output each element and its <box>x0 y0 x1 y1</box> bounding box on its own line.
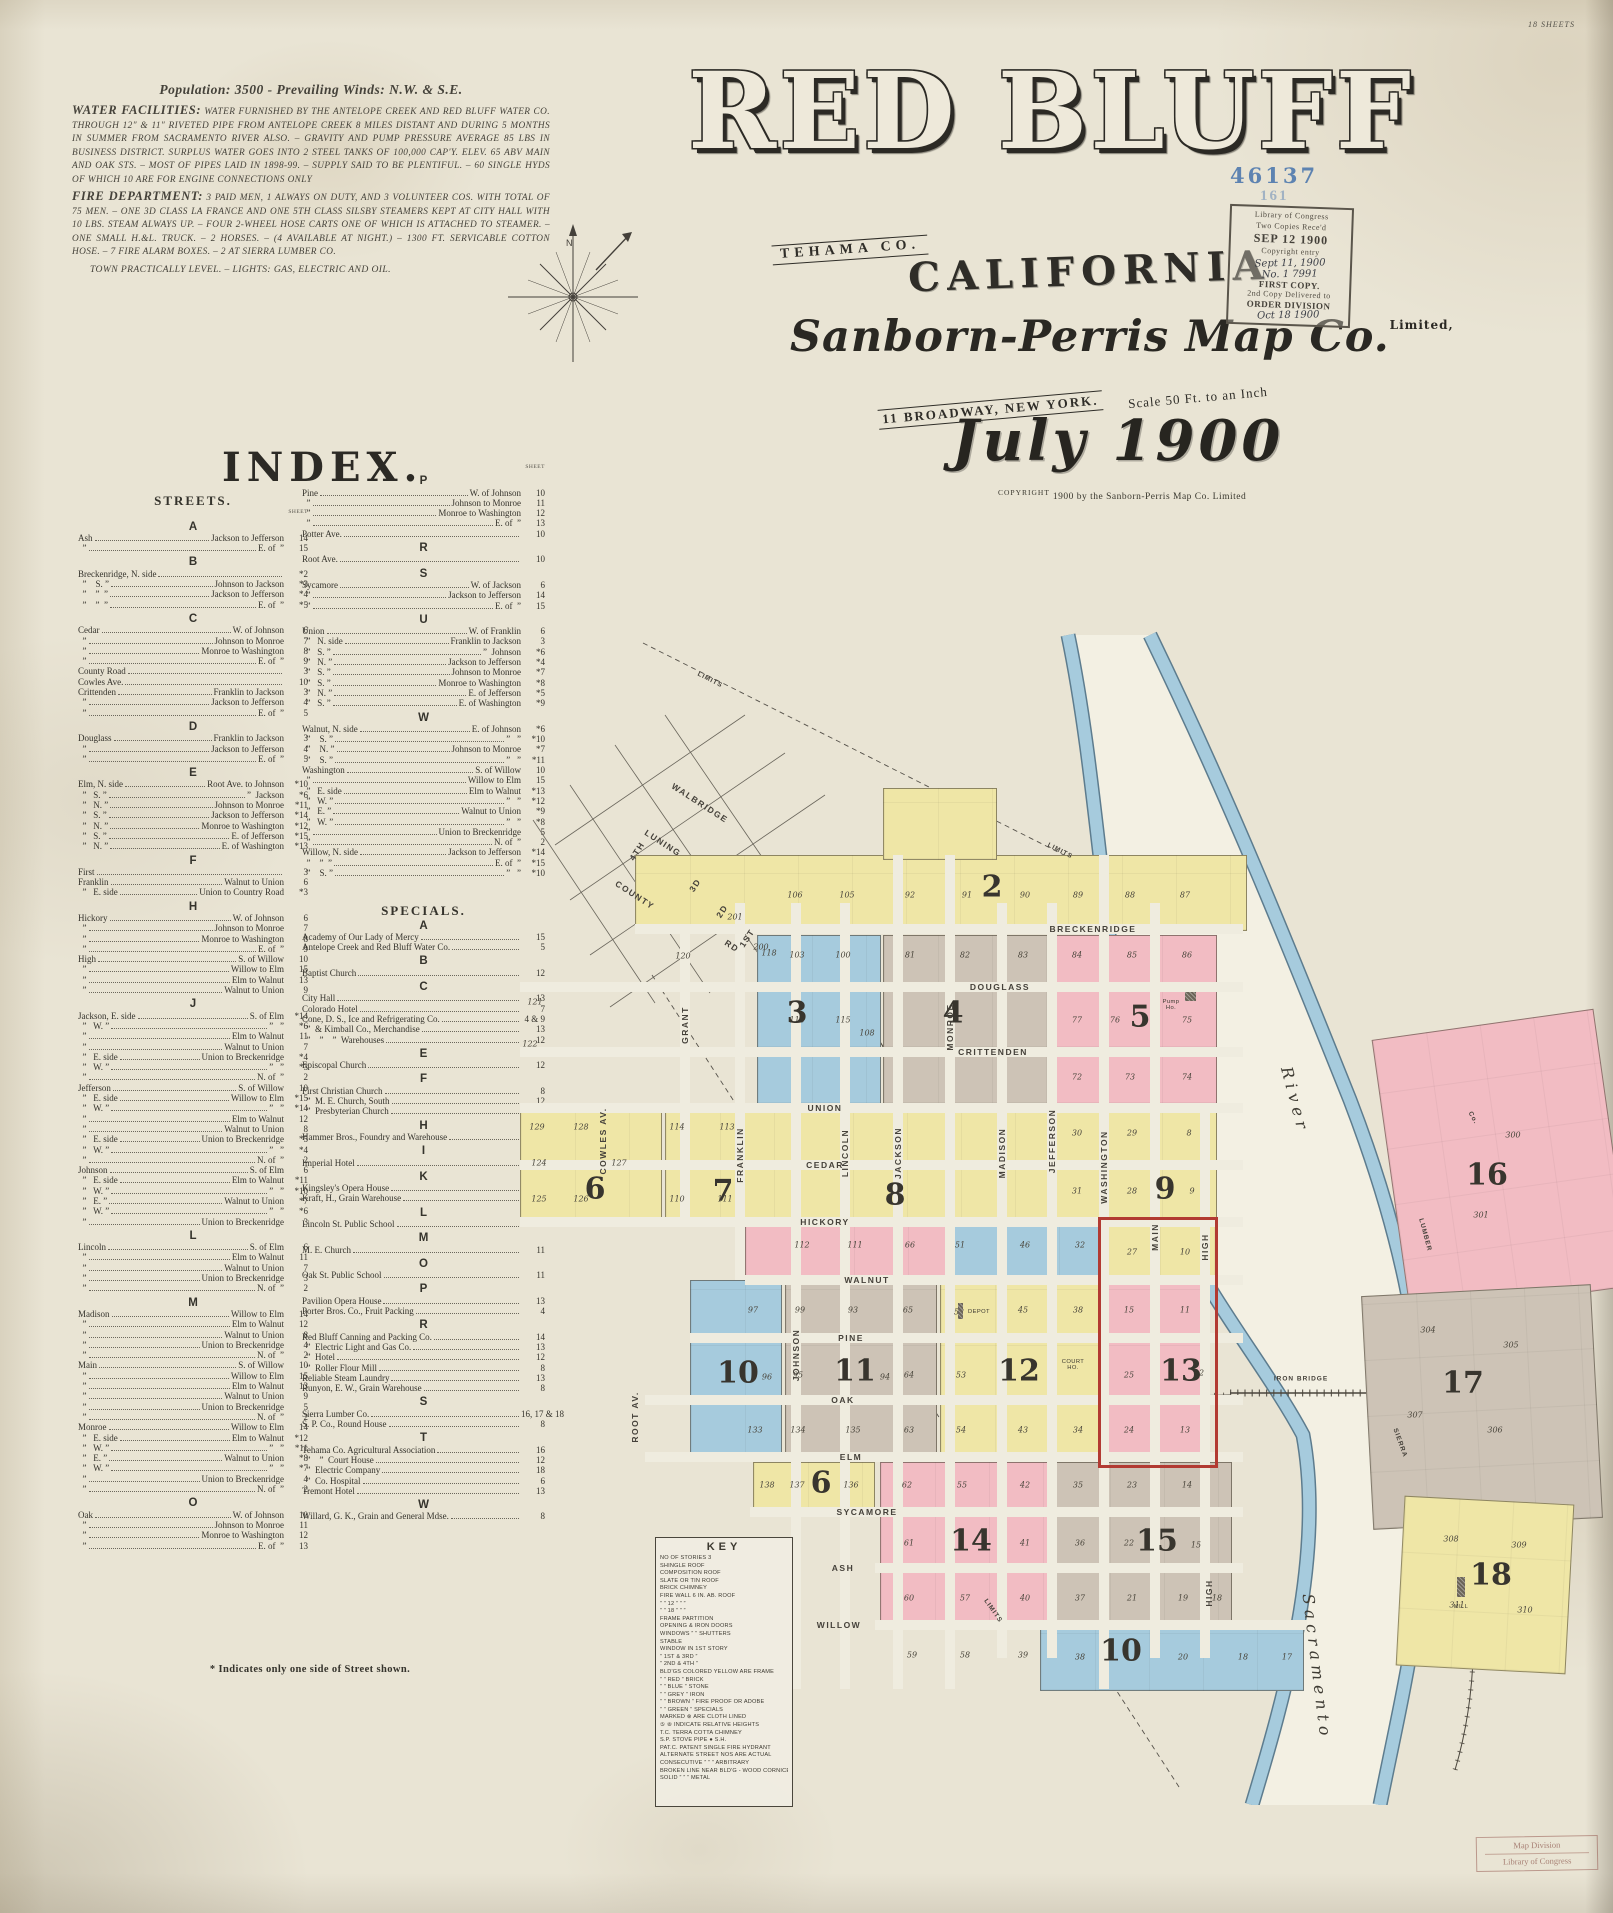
map-key: KEY NO OF STORIES 3SHINGLE ROOFCOMPOSITI… <box>655 1537 793 1807</box>
entry-range: ” ” <box>269 1062 284 1072</box>
lot-number: 122 <box>522 1040 537 1049</box>
street-label-ash: ASH <box>832 1563 854 1573</box>
river-label: River <box>1277 1065 1313 1136</box>
index-section-letter: H <box>78 902 308 912</box>
lot-number: 41 <box>1020 1539 1030 1548</box>
entry-name: ” E. side <box>78 1093 118 1103</box>
entry-leader-dots <box>111 1193 267 1194</box>
entry-range: Union to Breckenridge <box>202 1340 284 1350</box>
entry-name: Red Bluff Canning and Packing Co. <box>302 1332 432 1342</box>
key-line: SHINGLE ROOF <box>660 1563 788 1571</box>
index-street-entry: ” W. ”” ”*6 <box>78 1206 308 1216</box>
entry-name: ” W. ” <box>78 1145 109 1155</box>
entry-name: Kingsley's Opera House <box>302 1183 389 1193</box>
block-number-11: 11 <box>834 1354 876 1389</box>
entry-name: ” N. ” <box>78 841 108 851</box>
lot-number: 73 <box>1125 1073 1135 1082</box>
entry-name: Pine <box>302 488 318 498</box>
entry-name: ” W. ” <box>78 1021 109 1031</box>
entry-name: ” S. ” <box>302 647 331 657</box>
entry-leader-dots <box>89 941 200 942</box>
entry-range: Elm to Walnut <box>232 1381 284 1391</box>
lot-number: 121 <box>527 998 542 1007</box>
entry-range: Johnson to Jackson <box>215 579 285 589</box>
lot-number: 83 <box>1018 951 1028 960</box>
entry-range: E. of ” <box>258 944 284 954</box>
entry-name: ” S. ” <box>302 755 333 765</box>
entry-range: Monroe to Washington <box>201 934 284 944</box>
index-street-entry: MonroeWillow to Elm14 <box>78 1422 308 1432</box>
entry-range: Willow to Elm <box>231 1093 284 1103</box>
entry-name: ” Hotel <box>302 1352 335 1362</box>
entry-range: E. of ” <box>258 600 284 610</box>
entry-range: N. of ” <box>257 1350 284 1360</box>
entry-leader-dots <box>347 772 473 773</box>
entry-name: S. P. Co., Round House <box>302 1419 387 1429</box>
entry-range: E. of Washington <box>222 841 284 851</box>
entry-name: City Hall <box>302 993 335 1003</box>
lot-number: 32 <box>1075 1241 1085 1250</box>
compass-north-arrow <box>569 224 577 236</box>
entry-name: ” <box>78 656 87 666</box>
street-label-douglass: DOUGLASS <box>970 982 1030 992</box>
entry-name: ” ” ” <box>302 858 332 868</box>
street-label-washington: WASHINGTON <box>1099 1130 1109 1203</box>
key-line: SOLID ” ” ” METAL <box>660 1775 788 1783</box>
entry-range: ” ” <box>269 1103 284 1113</box>
entry-name: Franklin <box>78 877 109 887</box>
index-street-entry: MadisonWillow to Elm14 <box>78 1309 308 1319</box>
street-ash <box>875 1563 1243 1573</box>
entry-leader-dots <box>333 705 457 706</box>
entry-name: Potter Ave. <box>302 529 342 539</box>
entry-name: ” <box>78 934 87 944</box>
entry-name: M. E. Church <box>302 1245 351 1255</box>
entry-leader-dots <box>111 1450 267 1451</box>
lot-number: 201 <box>727 913 742 922</box>
lot-number: 21 <box>1127 1594 1137 1603</box>
index-street-entry: ”Walnut to Union8 <box>78 1330 308 1340</box>
entry-name: ” <box>78 1391 87 1401</box>
entry-name: ” <box>78 1412 87 1422</box>
entry-range: Monroe to Washington <box>201 821 284 831</box>
entry-leader-dots <box>89 1388 230 1389</box>
street-label-franklin: FRANKLIN <box>735 1127 745 1182</box>
index-street-entry: ”E. of ”9 <box>78 944 308 954</box>
entry-leader-dots <box>313 782 466 783</box>
index-street-entry: ”Union to Breckenridge3 <box>78 1273 308 1283</box>
entry-range: S. of Willow <box>238 1083 284 1093</box>
key-line: OPENING & IRON DOORS <box>660 1623 788 1631</box>
entry-leader-dots <box>125 786 205 787</box>
map-region <box>950 1222 1107 1282</box>
entry-leader-dots <box>120 1141 200 1142</box>
lot-number: 111 <box>847 1241 862 1250</box>
entry-leader-dots <box>89 1481 200 1482</box>
entry-leader-dots <box>335 875 504 876</box>
entry-range: Union to Breckenridge <box>202 1474 284 1484</box>
block-number-10: 10 <box>1100 1634 1142 1669</box>
entry-range: Jackson to Jefferson <box>211 533 284 543</box>
entry-name: Jackson, E. side <box>78 1011 136 1021</box>
entry-name: ” <box>78 754 87 764</box>
entry-range: N. of ” <box>257 1484 284 1494</box>
entry-leader-dots <box>111 586 213 587</box>
entry-sheet-number: 13 <box>284 1541 308 1551</box>
entry-range: Jackson to Jefferson <box>211 589 284 599</box>
key-line: T.C. TERRA COTTA CHIMNEY <box>660 1730 788 1738</box>
compass-north-letter: N <box>566 238 573 248</box>
entry-name: Root Ave. <box>302 554 338 564</box>
street-label-crittenden: CRITTENDEN <box>958 1047 1028 1057</box>
entry-name: ” E. ” <box>78 1453 107 1463</box>
lot-number: 93 <box>848 1306 858 1315</box>
entry-name: ” <box>78 1402 87 1412</box>
street-label-high: HIGH <box>1200 1233 1210 1260</box>
entry-name: Lincoln <box>78 1242 106 1252</box>
block-number-17: 17 <box>1442 1366 1484 1401</box>
street-label-pine: PINE <box>838 1333 864 1343</box>
entry-range: Franklin to Jackson <box>214 687 285 697</box>
entry-leader-dots <box>333 685 437 686</box>
entry-range: Walnut to Union <box>224 1196 284 1206</box>
index-street-entry: Cowles Ave.10 <box>78 677 308 687</box>
entry-name: Sierra Lumber Co. <box>302 1409 369 1419</box>
entry-range: E. of Jefferson <box>231 831 284 841</box>
entry-leader-dots <box>335 741 504 742</box>
index-street-entry: JeffersonS. of Willow10 <box>78 1083 308 1093</box>
lot-number: 62 <box>902 1481 912 1490</box>
map-division-line1: Map Division <box>1477 1839 1597 1852</box>
entry-leader-dots <box>111 1110 267 1111</box>
entry-name: ” <box>302 837 311 847</box>
key-line: PAT.C. PATENT SINGLE FIRE HYDRANT <box>660 1745 788 1753</box>
entry-name: ” W. ” <box>78 1186 109 1196</box>
entry-range: Willow to Elm <box>231 964 284 974</box>
block-number-6: 6 <box>811 1466 832 1501</box>
lot-number: 37 <box>1075 1594 1085 1603</box>
entry-range: E. of ” <box>258 1541 284 1551</box>
entry-name: ” E. ” <box>78 1196 107 1206</box>
entry-range: Union to Breckenridge <box>202 1217 284 1227</box>
key-line: ” ” 12 ” ” ” <box>660 1601 788 1609</box>
entry-leader-dots <box>344 536 519 537</box>
entry-leader-dots <box>89 1378 229 1379</box>
entry-name: First <box>78 867 95 877</box>
lot-number: 105 <box>839 891 854 900</box>
index-street-entry: ”Monroe to Washington8 <box>78 646 308 656</box>
entry-range: ” ” <box>269 1443 284 1453</box>
entry-name: ” W. ” <box>78 1443 109 1453</box>
lot-number: 301 <box>1473 1211 1488 1220</box>
publisher-title: Sanborn-Perris Map Co.Limited, <box>790 312 1454 362</box>
index-street-entry: ”E. of ”9 <box>78 656 308 666</box>
street-willow <box>875 1620 1307 1630</box>
entry-range: Monroe to Washington <box>201 646 284 656</box>
index-street-entry: ”Monroe to Washington12 <box>78 1530 308 1540</box>
index-street-entry: ” W. ”” ”*11 <box>78 1443 308 1453</box>
lot-number: 29 <box>1127 1129 1137 1138</box>
entry-leader-dots <box>360 854 446 855</box>
block-number-18: 18 <box>1470 1558 1512 1593</box>
entry-leader-dots <box>109 838 230 839</box>
lot-number: 309 <box>1511 1541 1526 1550</box>
entry-leader-dots <box>89 1419 256 1420</box>
entry-name: ” N. ” <box>302 657 332 667</box>
entry-name: ” E. side <box>78 1134 118 1144</box>
entry-leader-dots <box>89 1121 230 1122</box>
entry-name: ” <box>78 985 87 995</box>
entry-name: Cowles Ave. <box>78 677 123 687</box>
water-facilities-text: WATER FURNISHED BY THE ANTELOPE CREEK AN… <box>72 107 550 185</box>
entry-sheet-number: 12 <box>521 508 545 518</box>
entry-leader-dots <box>89 1224 200 1225</box>
lot-number: 82 <box>960 951 970 960</box>
entry-leader-dots <box>120 894 198 895</box>
entry-range: ” ” <box>269 1021 284 1031</box>
town-notes: Population: 3500 - Prevailing Winds: N.W… <box>72 82 550 279</box>
entry-leader-dots <box>313 834 437 835</box>
entry-range: N. of ” <box>257 1283 284 1293</box>
entry-name: ” <box>78 543 87 553</box>
key-line: WINDOWS ” ” SHUTTERS <box>660 1631 788 1639</box>
entry-leader-dots <box>120 1182 230 1183</box>
entry-range: Walnut to Union <box>224 1124 284 1134</box>
entry-name: Cedar <box>78 625 100 635</box>
entry-range: S. of Willow <box>238 954 284 964</box>
entry-leader-dots <box>335 803 504 804</box>
lot-number: 108 <box>859 1029 874 1038</box>
index-street-entry: ”N. of ”2 <box>78 1283 308 1293</box>
index-street-entry: ”Walnut to Union9 <box>78 985 308 995</box>
entry-leader-dots <box>89 930 213 931</box>
street-franklin <box>735 903 745 1280</box>
entry-range: Franklin to Jackson <box>214 733 285 743</box>
entry-leader-dots <box>89 1162 256 1163</box>
index-street-entry: ” W. ”” ”*7 <box>78 1463 308 1473</box>
entry-name: ” Presbyterian Church <box>302 1106 389 1116</box>
entry-name: Willow, N. side <box>302 847 358 857</box>
index-street-entry: ”Walnut to Union7 <box>78 1042 308 1052</box>
index-street-entry: ”Willow to Elm15 <box>78 964 308 974</box>
index-street-entry: DouglassFranklin to Jackson3 <box>78 733 308 743</box>
entry-name: ” <box>78 1283 87 1293</box>
entry-name: ” E. side <box>302 786 342 796</box>
entry-leader-dots <box>89 1270 223 1271</box>
feature-label-depot: DEPOT <box>968 1309 990 1315</box>
entry-name: ” Co. Hospital <box>302 1476 361 1486</box>
entry-leader-dots <box>95 540 210 541</box>
lot-number: 30 <box>1072 1129 1082 1138</box>
entry-name: Elm, N. side <box>78 779 123 789</box>
entry-leader-dots <box>89 550 257 551</box>
lot-number: 22 <box>1124 1539 1134 1548</box>
lot-number: 31 <box>1072 1187 1082 1196</box>
map-division-line2: Library of Congress <box>1477 1855 1597 1868</box>
entry-leader-dots <box>333 674 450 675</box>
entry-name: ” W. ” <box>78 1062 109 1072</box>
entry-name: ” <box>78 1273 87 1283</box>
entry-name: ” N. ” <box>78 800 108 810</box>
index-street-entry: ” S. ”” Jackson*6 <box>78 790 308 800</box>
entry-leader-dots <box>120 1440 230 1441</box>
entry-name: Pavilion Opera House <box>302 1296 381 1306</box>
entry-name: ” ” ” <box>78 589 108 599</box>
entry-leader-dots <box>89 663 257 664</box>
library-of-congress-stamp: Library of CongressTwo Copies Rece'dSEP … <box>1226 204 1354 328</box>
index-street-entry: ” S. ”Johnson to Jackson*3 <box>78 579 308 589</box>
index-street-entry: JohnsonS. of Elm6 <box>78 1165 308 1175</box>
entry-range: Monroe to Washington <box>438 508 521 518</box>
key-line: ” 1ST & 3RD ” <box>660 1654 788 1662</box>
entry-range: Elm to Walnut <box>232 1114 284 1124</box>
index-street-entry: HickoryW. of Johnson6 <box>78 913 308 923</box>
entry-leader-dots <box>334 664 446 665</box>
lot-number: 64 <box>904 1371 914 1380</box>
compass-rays <box>508 232 638 362</box>
index-section-letter: P <box>302 476 545 486</box>
feature-pump-ho- <box>1185 992 1196 1001</box>
lot-number: 8 <box>1186 1129 1191 1138</box>
street-label-grant: GRANT <box>680 1006 690 1044</box>
entry-range: Walnut to Union <box>224 877 284 887</box>
entry-name: ” E. ” <box>302 806 331 816</box>
lot-number: 114 <box>669 1123 684 1132</box>
entry-leader-dots <box>95 1517 231 1518</box>
index-street-entry: ”E. of ”5 <box>78 754 308 764</box>
entry-sheet-number: 11 <box>521 498 545 508</box>
entry-leader-dots <box>89 1548 257 1549</box>
lot-number: 23 <box>1127 1481 1137 1490</box>
index-street-entry: ”Johnson to Monroe11 <box>302 498 545 508</box>
entry-leader-dots <box>89 704 210 705</box>
fire-department-paragraph: FIRE DEPARTMENT: 3 PAID MEN, 1 ALWAYS ON… <box>72 190 550 260</box>
entry-name: ” <box>78 1155 87 1165</box>
entry-name: Tremont Hotel <box>302 1486 355 1496</box>
entry-range: ” ” <box>269 1186 284 1196</box>
lot-number: 124 <box>531 1159 546 1168</box>
entry-name: Antelope Creek and Red Bluff Water Co. <box>302 942 450 952</box>
entry-name: ” S. ” <box>78 579 109 589</box>
index-street-entry: ”Jackson to Jefferson4 <box>78 697 308 707</box>
index-street-entry: ” E. sideElm to Walnut*12 <box>78 1433 308 1443</box>
feature-mill <box>1457 1577 1465 1597</box>
water-facilities-label: WATER FACILITIES: <box>72 103 201 117</box>
index-street-entry: ”E. of ”13 <box>302 518 545 528</box>
entry-leader-dots <box>333 813 459 814</box>
block-number-15: 15 <box>1136 1524 1178 1559</box>
entry-leader-dots <box>89 1290 256 1291</box>
entry-name: ” <box>302 827 311 837</box>
street-label-johnson: JOHNSON <box>791 1329 801 1382</box>
lot-number: 135 <box>845 1426 860 1435</box>
feature-label-pump-ho-: Pump Ho. <box>1163 999 1180 1011</box>
entry-leader-dots <box>109 1203 222 1204</box>
entry-name: ” <box>302 775 311 785</box>
lot-number: 90 <box>1020 891 1030 900</box>
lot-number: 38 <box>1073 1306 1083 1315</box>
entry-range: Walnut to Union <box>224 1042 284 1052</box>
entry-range: S. of Willow <box>238 1360 284 1370</box>
entry-sheet-number: 10 <box>521 529 545 539</box>
lot-number: 19 <box>1178 1594 1188 1603</box>
entry-name: ” M. E. Church, South <box>302 1096 390 1106</box>
index-street-entry: OakW. of Johnson10 <box>78 1510 308 1520</box>
entry-range: Willow to Elm <box>231 1371 284 1381</box>
entry-range: E. of ” <box>258 754 284 764</box>
street-label-lincoln: LINCOLN <box>840 1129 850 1177</box>
copyright-word: COPYRIGHT <box>998 488 1050 497</box>
entry-range: Elm to Walnut <box>232 1031 284 1041</box>
map-label-limits: LIMITS <box>696 671 724 690</box>
index-street-entry: ” N. ”Monroe to Washington*12 <box>78 821 308 831</box>
lot-number: 75 <box>1182 1016 1192 1025</box>
entry-range: Elm to Walnut <box>232 1433 284 1443</box>
index-street-entry: ” E. sideUnion to Breckenridge*5 <box>78 1134 308 1144</box>
entry-name: ” <box>78 1520 87 1530</box>
entry-leader-dots <box>109 1460 222 1461</box>
entry-name: Willard, G. K., Grain and General Mdse. <box>302 1511 449 1521</box>
index-street-entry: ” E. ”Walnut to Union*7 <box>78 1196 308 1206</box>
street-label-hickory: HICKORY <box>800 1217 849 1227</box>
block-number-14: 14 <box>950 1524 992 1559</box>
index-street-entry: ”Willow to Elm15 <box>78 1371 308 1381</box>
entry-name: ” <box>78 646 87 656</box>
street-jackson <box>893 855 903 1689</box>
lot-number: 129 <box>529 1123 544 1132</box>
entry-name: Lincoln St. Public School <box>302 1219 395 1229</box>
street-label-jefferson: JEFFERSON <box>1047 1109 1057 1174</box>
entry-range: Johnson to Monroe <box>215 923 285 933</box>
lot-number: 66 <box>905 1241 915 1250</box>
entry-leader-dots <box>89 982 230 983</box>
block-number-10: 10 <box>717 1356 759 1391</box>
map-region-3 <box>757 935 881 1104</box>
index-section-letter: O <box>78 1498 308 1508</box>
entry-name: ” & Kimball Co., Merchandise <box>302 1024 420 1034</box>
lot-number: 106 <box>787 891 802 900</box>
entry-range: Walnut to Union <box>224 1453 284 1463</box>
entry-range: Root Ave. to Johnson <box>207 779 284 789</box>
index-street-entry: ” E. sideWillow to Elm*15 <box>78 1093 308 1103</box>
entry-range: Elm to Walnut <box>232 1252 284 1262</box>
index-street-entry: ”Elm to Walnut12 <box>78 1319 308 1329</box>
entry-range: N. of ” <box>257 1412 284 1422</box>
entry-range: Elm to Walnut <box>232 975 284 985</box>
street-cedar <box>520 1160 1243 1170</box>
accession-number-stamp: 46137 <box>1230 163 1318 188</box>
lot-number: 96 <box>762 1373 772 1382</box>
index-section-letter: F <box>78 856 308 866</box>
index-street-entry: LincolnS. of Elm6 <box>78 1242 308 1252</box>
entry-name: ” <box>78 1474 87 1484</box>
entry-name: ” <box>78 1330 87 1340</box>
index-section-letter: C <box>78 614 308 624</box>
entry-leader-dots <box>89 1079 256 1080</box>
index-footnote: * Indicates only one side of Street show… <box>95 1664 525 1675</box>
entry-leader-dots <box>113 1090 236 1091</box>
entry-name: ” <box>78 1042 87 1052</box>
entry-leader-dots <box>335 762 504 763</box>
key-line: SLATE OR TIN ROOF <box>660 1578 788 1586</box>
state-title: CALIFORNIA <box>907 242 1271 302</box>
key-title: KEY <box>660 1541 788 1553</box>
lot-number: 9 <box>1189 1187 1194 1196</box>
street-label-jackson: JACKSON <box>893 1127 903 1179</box>
entry-leader-dots <box>89 1337 223 1338</box>
entry-leader-dots <box>89 1409 200 1410</box>
entry-name: ” <box>78 708 87 718</box>
